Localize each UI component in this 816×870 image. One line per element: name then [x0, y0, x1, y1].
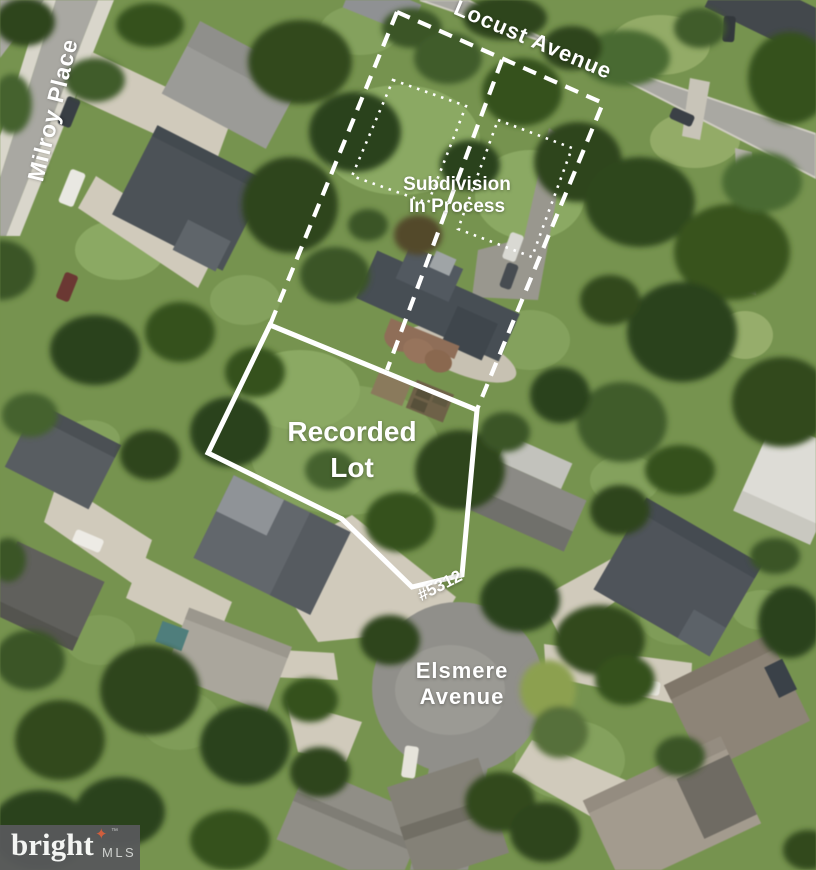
- elsmere-label-line1: Elsmere: [416, 658, 509, 684]
- four-pointed-star-icon: ✦: [95, 827, 108, 842]
- subdivision-label-line1: Subdivision: [403, 174, 511, 196]
- subdivision-label: Subdivision In Process: [403, 174, 511, 218]
- recorded-lot-label-line1: Recorded: [287, 414, 416, 450]
- brightmls-logo: bright ✦ ™ MLS: [0, 825, 140, 870]
- brightmls-mls-text: MLS: [102, 845, 136, 860]
- street-label-elsmere-avenue: Elsmere Avenue: [416, 658, 509, 710]
- elsmere-label-line2: Avenue: [416, 684, 509, 710]
- recorded-lot-label: Recorded Lot: [287, 414, 416, 486]
- trademark-symbol: ™: [111, 828, 118, 835]
- subdivision-label-line2: In Process: [403, 196, 511, 218]
- aerial-map-stage: Milroy Place Locust Avenue Subdivision I…: [0, 0, 816, 870]
- recorded-lot-label-line2: Lot: [287, 450, 416, 486]
- brightmls-brand-text: bright: [11, 828, 94, 862]
